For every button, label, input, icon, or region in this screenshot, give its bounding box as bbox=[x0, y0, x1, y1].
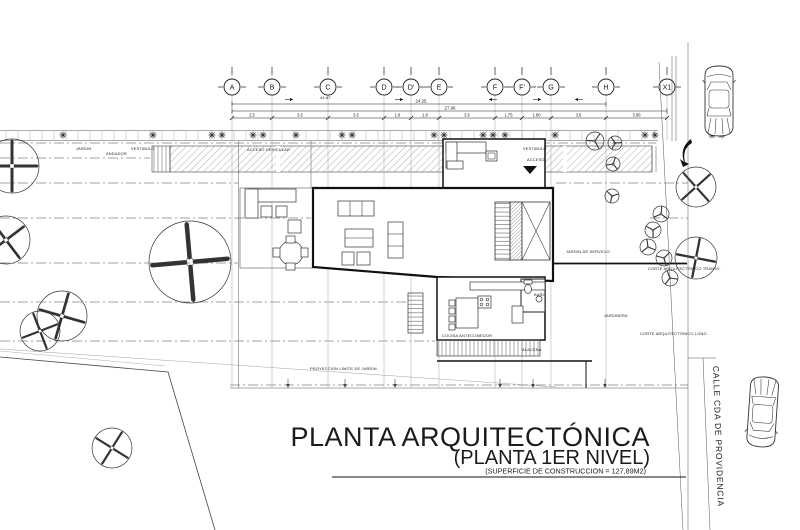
dim-segment-label: 1.8 bbox=[395, 113, 401, 118]
tree-branch bbox=[684, 173, 695, 185]
tree-branch bbox=[23, 332, 38, 338]
annotation-label: ACCESO VEHICULAR bbox=[247, 147, 290, 152]
dim-segment-label: 3.6 bbox=[576, 113, 582, 118]
ottoman bbox=[342, 252, 354, 265]
tree bbox=[605, 189, 619, 203]
dim-segment-label: 2.5 bbox=[249, 113, 255, 118]
tree-canopy bbox=[20, 311, 60, 351]
dim-segment-label: 3.88 bbox=[633, 113, 642, 118]
stool bbox=[449, 324, 455, 330]
reference-arrowhead bbox=[290, 98, 293, 101]
tree-canopy bbox=[640, 239, 656, 255]
dim-segment-label: 1.8 bbox=[422, 113, 428, 118]
reference-arrowhead bbox=[575, 98, 578, 101]
tree-canopy bbox=[149, 221, 231, 303]
tree-trunk bbox=[110, 446, 114, 450]
tree bbox=[149, 221, 231, 303]
dim-segment-label: 3.6 bbox=[464, 113, 470, 118]
tree-branch bbox=[56, 319, 62, 338]
trees bbox=[0, 132, 717, 468]
tree-branch bbox=[0, 222, 4, 237]
sidewalk-band bbox=[0, 131, 658, 173]
dim-segment-label: 3.6 bbox=[297, 113, 303, 118]
entry-ramp bbox=[152, 146, 170, 172]
axis-label: F bbox=[493, 83, 498, 92]
tree bbox=[645, 222, 661, 238]
reference-arrowhead bbox=[538, 98, 541, 101]
terrace-table bbox=[261, 206, 272, 217]
dim-segment-label: 3.6 bbox=[353, 113, 359, 118]
shrub bbox=[250, 132, 257, 139]
leader-arrowhead bbox=[343, 384, 347, 388]
tree-trunk bbox=[4, 238, 9, 243]
tree-branch bbox=[696, 239, 699, 255]
tree-branch bbox=[667, 271, 669, 277]
tree-branch bbox=[677, 254, 693, 257]
tree bbox=[92, 428, 132, 468]
axis-label: C bbox=[325, 83, 330, 92]
street-name: CALLE CDA DE PROVIDENCIA bbox=[711, 366, 726, 507]
tree-branch bbox=[698, 189, 709, 201]
tree-branch bbox=[661, 207, 662, 213]
tree-branch bbox=[665, 253, 670, 258]
tree-trunk bbox=[60, 314, 65, 319]
tree-branch bbox=[607, 192, 611, 196]
tree bbox=[640, 239, 656, 255]
leader-arrows bbox=[286, 379, 607, 388]
main-stair-hatch bbox=[510, 202, 522, 260]
street: CALLE CDA DE PROVIDENCIA bbox=[659, 42, 782, 530]
shrub bbox=[652, 132, 659, 139]
tree-branch bbox=[113, 432, 121, 446]
tree-branch bbox=[195, 259, 228, 262]
tree-branch bbox=[649, 247, 655, 249]
tree-branch bbox=[654, 214, 660, 217]
leader-arrowhead bbox=[603, 384, 607, 388]
dim-segment-label: 1.80 bbox=[533, 113, 542, 118]
shrub bbox=[642, 132, 649, 139]
tree-branch bbox=[642, 248, 647, 252]
axis-label: X1 bbox=[663, 83, 672, 92]
driveway-joint bbox=[563, 146, 567, 172]
living-sofa bbox=[338, 201, 374, 216]
tree-trunk bbox=[38, 329, 42, 333]
curb-ticks bbox=[0, 131, 658, 140]
leader-arrowhead bbox=[286, 384, 290, 388]
axis-label: F' bbox=[519, 83, 525, 92]
refrigerator bbox=[512, 306, 523, 323]
axis-label: E bbox=[437, 83, 442, 92]
shrub bbox=[260, 132, 267, 139]
shrub bbox=[480, 132, 487, 139]
leader-arrowhead bbox=[393, 384, 397, 388]
tree bbox=[675, 237, 717, 279]
toilet bbox=[525, 285, 532, 294]
tree-branch bbox=[187, 224, 190, 257]
tree-branch bbox=[587, 140, 594, 141]
stool bbox=[449, 308, 455, 314]
parked-car-bottom bbox=[744, 376, 782, 448]
annotation-label: ALACENA bbox=[522, 347, 542, 352]
shrub bbox=[339, 132, 346, 139]
floor-plan-screenshot: ABCDD'EFF'GHX1 24.2527.962.53.63.61.81.8… bbox=[0, 0, 800, 530]
tree-branch bbox=[611, 197, 612, 202]
tree bbox=[20, 311, 60, 351]
dining-table bbox=[279, 241, 303, 265]
reference-arrowhead bbox=[489, 98, 492, 101]
tree-branch bbox=[698, 175, 710, 186]
garden-stair bbox=[408, 293, 423, 333]
axis-label: A bbox=[230, 83, 235, 92]
tree-branch bbox=[41, 333, 47, 348]
axis-label: H bbox=[603, 83, 608, 92]
cooktop bbox=[478, 296, 491, 308]
annotation-label: JARDIN DE SERVICIO bbox=[566, 249, 610, 254]
tree-branch bbox=[33, 314, 39, 329]
flow-arrow bbox=[680, 139, 692, 167]
tree-branch bbox=[42, 324, 57, 330]
axis-label: G bbox=[548, 83, 554, 92]
tree-branch bbox=[8, 242, 20, 257]
tree-branch bbox=[665, 279, 669, 284]
shrub bbox=[60, 132, 67, 139]
leader-arrowhead bbox=[498, 384, 502, 388]
house-walls bbox=[239, 139, 688, 388]
tree-branch bbox=[654, 226, 659, 229]
ottoman bbox=[357, 252, 370, 265]
tree-canopy bbox=[0, 216, 30, 264]
title-block: PLANTA ARQUITECTÓNICA (PLANTA 1ER NIVEL)… bbox=[290, 421, 686, 477]
dim-total-label: 27.96 bbox=[445, 106, 457, 111]
shrub bbox=[209, 132, 216, 139]
reference-arrowhead bbox=[400, 98, 403, 101]
annotation-label: COCINA ANTECOMEDOR bbox=[442, 333, 492, 338]
axis-label: B bbox=[270, 83, 275, 92]
axis-label: D bbox=[381, 83, 386, 92]
dim-total-label: 24.25 bbox=[416, 99, 428, 104]
annotation-label: ACCESO bbox=[527, 157, 545, 162]
tree bbox=[676, 167, 716, 207]
shrub bbox=[441, 132, 448, 139]
cabinet bbox=[388, 222, 403, 258]
tree-canopy bbox=[675, 237, 717, 279]
tree-branch bbox=[671, 278, 677, 279]
tree bbox=[37, 291, 87, 341]
kitchen-island bbox=[456, 298, 478, 328]
tree bbox=[0, 139, 39, 193]
area-note: (SUPERFICIE DE CONSTRUCCION = 127,89M2) bbox=[485, 467, 646, 476]
dim-segment-label: 1.75 bbox=[505, 113, 514, 118]
main-stair-treads bbox=[495, 202, 510, 260]
annotation-label: ANDADOR bbox=[106, 151, 127, 156]
stool bbox=[449, 300, 455, 306]
tree-trunk bbox=[663, 257, 665, 259]
kitchen-counter bbox=[470, 282, 545, 290]
tree-canopy bbox=[676, 167, 716, 207]
annotation-label: JARDIN bbox=[76, 146, 91, 151]
tree-branch bbox=[647, 226, 653, 229]
tree-branch bbox=[114, 449, 128, 457]
tree-branch bbox=[8, 227, 23, 239]
tree bbox=[0, 216, 30, 264]
tree-canopy bbox=[92, 428, 132, 468]
annotation-label: BAÑO bbox=[534, 292, 546, 297]
shrub bbox=[552, 132, 559, 139]
stool bbox=[449, 316, 455, 322]
leader-arrowhead bbox=[531, 384, 535, 388]
shrub bbox=[431, 132, 438, 139]
shrub bbox=[490, 132, 497, 139]
shrub bbox=[150, 132, 157, 139]
tree-branch bbox=[657, 256, 663, 258]
curb-line bbox=[659, 62, 683, 530]
tree-branch bbox=[40, 310, 59, 316]
side-table bbox=[486, 151, 497, 161]
annotation-label: CORTE ARQUITECTÓNICO LONG. bbox=[640, 331, 708, 336]
annotation-label: CORTE ARQUITECTÓNICO TRANSV. bbox=[648, 266, 721, 271]
tree-branch bbox=[190, 267, 193, 300]
lot-boundary bbox=[0, 357, 215, 530]
tree-branch bbox=[0, 242, 4, 254]
shrub bbox=[349, 132, 356, 139]
annotation-label: 44.87 bbox=[320, 95, 331, 100]
annotation-label: JARDINERA bbox=[604, 313, 628, 318]
shrub bbox=[293, 132, 300, 139]
tree-branch bbox=[152, 262, 185, 265]
parked-car-top bbox=[703, 66, 736, 136]
dimension-lines: 24.2527.962.53.63.61.81.83.61.751.803.63… bbox=[230, 98, 669, 120]
annotation-label: PROYECCION LIMITE DE JARDIN bbox=[310, 366, 377, 371]
tree-canopy bbox=[37, 291, 87, 341]
floor-plan-canvas: ABCDD'EFF'GHX1 24.2527.962.53.63.61.81.8… bbox=[0, 0, 800, 530]
shrub bbox=[502, 132, 509, 139]
shrub bbox=[219, 132, 226, 139]
tree-branch bbox=[63, 294, 69, 313]
tree-branch bbox=[96, 438, 110, 446]
axis-label: D' bbox=[408, 83, 415, 92]
tree-branch bbox=[698, 258, 714, 261]
tree-branch bbox=[613, 194, 618, 196]
annotation-label: VESTIBULO bbox=[131, 146, 155, 151]
tree-branch bbox=[647, 240, 648, 246]
tree-trunk bbox=[694, 185, 698, 189]
annotation-label: VESTIBULO bbox=[523, 146, 547, 151]
tree-branch bbox=[65, 317, 84, 323]
tree-branch bbox=[682, 189, 694, 200]
tree-branch bbox=[102, 450, 110, 464]
